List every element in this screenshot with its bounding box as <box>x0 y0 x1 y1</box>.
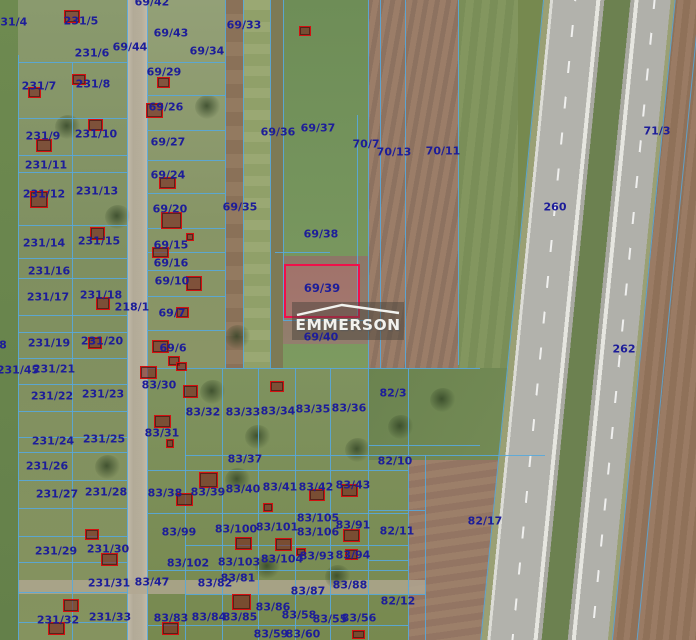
parcel-label: 69/27 <box>151 136 186 149</box>
parcel-boundary <box>147 95 225 96</box>
parcel-label: 83/106 <box>297 526 339 539</box>
parcel-label: 83/37 <box>228 453 263 466</box>
parcel-label: 83/56 <box>342 612 377 625</box>
parcel-boundary <box>185 545 408 546</box>
tree <box>225 325 251 349</box>
parcel-label: 83/47 <box>135 576 170 589</box>
parcel-label: 83/84 <box>192 611 227 624</box>
building-marker <box>232 594 251 610</box>
parcel-label: 231/4 <box>0 16 27 29</box>
parcel-label: 71/3 <box>644 125 671 138</box>
parcel-label: 69/10 <box>155 275 190 288</box>
building-marker <box>352 630 365 639</box>
parcel-label: 83/33 <box>226 406 261 419</box>
parcel-label: 231/26 <box>26 460 68 473</box>
parcel-label: 83/59 <box>254 628 289 640</box>
parcel-label: 69/43 <box>154 27 189 40</box>
parcel-label: 82/12 <box>381 595 416 608</box>
parcel-boundary <box>147 228 225 229</box>
parcel-label: 83/41 <box>263 481 298 494</box>
verge-strip <box>458 0 518 368</box>
parcel-label: 83/35 <box>296 403 331 416</box>
parcel-label: 231/28 <box>85 486 127 499</box>
parcel-label: 83/38 <box>148 487 183 500</box>
parcel-label: 70/7 <box>353 138 380 151</box>
parcel-boundary <box>18 384 127 385</box>
parcel-label: 69/34 <box>190 45 225 58</box>
parcel-boundary <box>18 118 127 119</box>
parcel-label: 231/17 <box>27 291 69 304</box>
parcel-label: 262 <box>613 343 636 356</box>
parcel-label: 69/20 <box>153 203 188 216</box>
building-marker <box>183 385 198 398</box>
parcel-boundary <box>147 270 225 271</box>
building-marker <box>157 77 170 88</box>
parcel-label: 69/6 <box>160 342 187 355</box>
street-road <box>127 0 148 640</box>
building-marker <box>140 366 157 379</box>
parcel-label: 231/21 <box>33 363 75 376</box>
parcel-boundary <box>368 560 408 561</box>
parcel-label: 83/42 <box>299 481 334 494</box>
parcel-label: 231/24 <box>32 435 74 448</box>
building-marker <box>270 381 284 392</box>
tree <box>388 415 414 439</box>
building-marker <box>299 26 311 36</box>
parcel-label: 69/38 <box>304 228 339 241</box>
parcel-label: 218/1 <box>115 301 150 314</box>
parcel-boundary <box>18 55 19 640</box>
parcel-boundary <box>147 0 148 640</box>
parcel-label: 83/60 <box>286 628 321 640</box>
parcel-label: 231/27 <box>36 488 78 501</box>
parcel-boundary <box>18 592 127 593</box>
parcel-boundary <box>147 513 408 514</box>
parcel-boundary <box>425 455 426 640</box>
parcel-label: 69/26 <box>149 101 184 114</box>
parcel-label: 69/40 <box>304 331 339 344</box>
tree <box>195 95 221 119</box>
parcel-boundary <box>147 130 225 131</box>
parcel-label: 231/33 <box>89 611 131 624</box>
parcel-label: 83/93 <box>300 550 335 563</box>
tree <box>95 455 121 479</box>
parcel-boundary <box>275 252 330 253</box>
parcel-label: 231/31 <box>88 577 130 590</box>
parcel-label: 83/32 <box>186 406 221 419</box>
cadastral-map[interactable]: 69/39 EMMERSON 231/4231/569/4269/3369/43… <box>0 0 696 640</box>
parcel-boundary <box>458 0 459 365</box>
parcel-label: 69/15 <box>154 239 189 252</box>
parcel-boundary <box>147 368 480 369</box>
parcel-label: 83/30 <box>142 379 177 392</box>
parcel-boundary <box>18 480 127 481</box>
parcel-boundary <box>147 160 225 161</box>
parcel-boundary <box>18 332 127 333</box>
olive-strip <box>270 0 283 368</box>
parcel-label: 231/30 <box>87 543 129 556</box>
parcel-label: 231/8 <box>76 78 111 91</box>
parcel-label: 83/105 <box>297 512 339 525</box>
parcel-label: 231/12 <box>23 188 65 201</box>
building-marker <box>176 362 187 371</box>
parcel-label: 83/100 <box>215 523 257 536</box>
building-marker <box>275 538 292 551</box>
parcel-label: 69/42 <box>135 0 170 9</box>
field-left-grass <box>0 0 18 640</box>
parcel-label: 82/11 <box>380 525 415 538</box>
parcel-label: 231/22 <box>31 390 73 403</box>
parcel-label: 231/13 <box>76 185 118 198</box>
parcel-boundary <box>18 172 127 173</box>
parcel-label: 83/103 <box>218 556 260 569</box>
parcel-label: 83/88 <box>333 579 368 592</box>
parcel-boundary <box>405 0 406 368</box>
parcel-label: 231/7 <box>22 80 57 93</box>
parcel-boundary <box>147 470 408 471</box>
parcel-boundary <box>147 625 408 626</box>
parcel-boundary <box>18 315 127 316</box>
parcel-label: 231/6 <box>75 47 110 60</box>
parcel-label: 231/20 <box>81 335 123 348</box>
highlighted-parcel-label: 69/39 <box>304 281 340 295</box>
parcel-boundary <box>18 452 127 453</box>
parcel-label: 83/39 <box>191 486 226 499</box>
parcel-label: 69/36 <box>261 126 296 139</box>
parcel-label: 82/17 <box>468 515 503 528</box>
parcel-boundary <box>270 0 271 368</box>
parcel-label: 83/99 <box>162 526 197 539</box>
parcel-label: 83/87 <box>291 585 326 598</box>
parcel-label: 83/36 <box>332 402 367 415</box>
parcel-boundary <box>147 570 408 571</box>
parcel-label: 69/29 <box>147 66 182 79</box>
building-marker <box>63 599 79 612</box>
parcel-boundary <box>147 296 225 297</box>
parcel-label: 231/10 <box>75 128 117 141</box>
brown-strip <box>225 0 243 368</box>
parcel-label: 69/37 <box>301 122 336 135</box>
parcel-label: 83/102 <box>167 557 209 570</box>
parcel-label: 70/11 <box>426 145 461 158</box>
parcel-label: 83/83 <box>154 612 189 625</box>
parcel-label: 69/16 <box>154 257 189 270</box>
parcel-boundary <box>18 536 127 537</box>
parcel-label: 231/14 <box>23 237 65 250</box>
parcel-label: 69/33 <box>227 19 262 32</box>
parcel-boundary <box>18 155 127 156</box>
field-82-3 <box>368 368 520 460</box>
parcel-label: 69/7 <box>159 307 186 320</box>
parcel-boundary <box>147 330 225 331</box>
parcel-label: 69/44 <box>113 41 148 54</box>
parcel-label: 70/13 <box>377 146 412 159</box>
parcel-label: 69/24 <box>151 169 186 182</box>
parcel-label: 231/15 <box>78 235 120 248</box>
parcel-boundary <box>147 62 225 63</box>
parcel-label: 231/11 <box>25 159 67 172</box>
building-marker <box>85 529 99 540</box>
parcel-label: 231/32 <box>37 614 79 627</box>
tree <box>430 388 456 412</box>
parcel-boundary <box>147 193 225 194</box>
parcel-label: 260 <box>544 201 567 214</box>
parcel-label: 231/19 <box>28 337 70 350</box>
watermark-roof-icon <box>296 303 400 316</box>
parcel-label: 231/25 <box>83 433 125 446</box>
parcel-label: 8 <box>0 339 7 352</box>
parcel-label: 83/94 <box>336 549 371 562</box>
parcel-label: 231/5 <box>64 15 99 28</box>
parcel-label: 83/104 <box>261 553 303 566</box>
parcel-boundary <box>225 0 226 368</box>
parcel-boundary <box>18 225 127 226</box>
parcel-boundary <box>18 358 127 359</box>
parcel-label: 83/81 <box>221 572 256 585</box>
parcel-label: 83/40 <box>226 483 261 496</box>
parcel-label: 83/85 <box>223 611 258 624</box>
parcel-label: 231/23 <box>82 388 124 401</box>
parcel-boundary <box>185 455 408 456</box>
parcel-label: 82/3 <box>380 387 407 400</box>
meadow-69-35 <box>243 0 270 368</box>
parcel-label: 83/91 <box>336 519 371 532</box>
parcel-label: 83/34 <box>261 405 296 418</box>
parcel-label: 82/10 <box>378 455 413 468</box>
parcel-label: 231/29 <box>35 545 77 558</box>
parcel-label: 83/101 <box>256 521 298 534</box>
parcel-boundary <box>18 278 127 279</box>
parcel-label: 83/58 <box>282 609 317 622</box>
parcel-boundary <box>368 445 480 446</box>
building-marker <box>166 439 174 448</box>
parcel-boundary <box>18 62 127 63</box>
parcel-boundary <box>18 258 127 259</box>
building-marker <box>235 537 252 550</box>
parcel-boundary <box>368 510 425 511</box>
parcel-label: 231/16 <box>28 265 70 278</box>
parcel-boundary <box>18 508 127 509</box>
parcel-boundary <box>408 455 545 456</box>
parcel-label: 231/9 <box>26 130 61 143</box>
parcel-boundary <box>222 368 223 640</box>
parcel-boundary <box>243 0 244 368</box>
parcel-boundary <box>18 411 127 412</box>
parcel-boundary <box>368 368 369 640</box>
building-marker <box>263 503 273 512</box>
parcel-label: 83/43 <box>336 479 371 492</box>
parcel-label: 83/31 <box>145 427 180 440</box>
parcel-label: 69/35 <box>223 201 258 214</box>
